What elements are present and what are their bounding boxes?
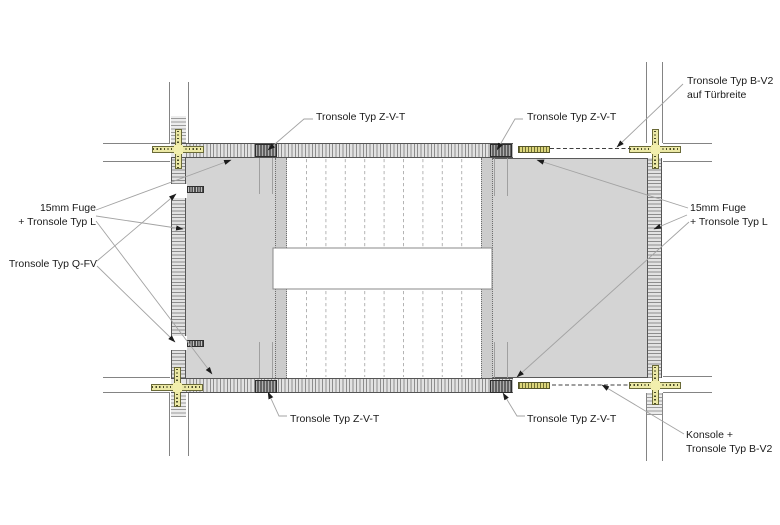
top-wall-corner-left bbox=[171, 143, 186, 158]
label-qfv: Tronsole Typ Q-FV bbox=[5, 257, 97, 271]
cross-arm-horizontal bbox=[629, 146, 681, 153]
label-text-line1: Tronsole Typ B-V2 bbox=[687, 74, 773, 88]
label-fuge-left: 15mm Fuge + Tronsole Typ L bbox=[6, 201, 96, 229]
label-text-line2: + Tronsole Typ L bbox=[6, 215, 96, 229]
stair-edge-strip-left bbox=[275, 158, 287, 378]
label-text-line1: 15mm Fuge bbox=[690, 201, 768, 215]
tronsole-bv2-strip-top bbox=[518, 146, 550, 153]
left-wall-joint-gap-upper bbox=[170, 184, 187, 198]
leader-zvt-bottom-right bbox=[503, 393, 525, 416]
cross-arm-horizontal bbox=[629, 382, 681, 389]
left-wall-continuation-bottom bbox=[171, 393, 186, 417]
label-text-line1: 15mm Fuge bbox=[6, 201, 96, 215]
label-text-line2: auf Türbreite bbox=[687, 88, 773, 102]
top-wall bbox=[186, 143, 513, 158]
tronsole-bv2-strip-bottom bbox=[518, 382, 550, 389]
leader-bv2-top bbox=[617, 84, 683, 147]
label-text: Tronsole Typ Z-V-T bbox=[527, 413, 616, 425]
leader-qfv-lower bbox=[97, 266, 175, 342]
cross-center bbox=[651, 381, 660, 390]
label-text-line1: Konsole + bbox=[686, 428, 772, 442]
label-zvt-bottom-left: Tronsole Typ Z-V-T bbox=[290, 412, 379, 426]
label-text: Tronsole Typ Z-V-T bbox=[290, 413, 379, 425]
label-text: Tronsole Typ Z-V-T bbox=[316, 111, 405, 123]
leader-konsole bbox=[602, 385, 684, 434]
tronsole-zvt-element-bottom-left bbox=[255, 380, 277, 393]
label-text: Tronsole Typ Q-FV bbox=[9, 258, 97, 270]
leader-fuge-left-2 bbox=[96, 216, 183, 229]
leader-zvt-bottom-left bbox=[268, 392, 287, 416]
stair-edge-strip-right bbox=[481, 158, 493, 378]
tronsole-qfv-element-lower bbox=[187, 340, 204, 347]
right-wall bbox=[647, 158, 662, 378]
label-zvt-top-left: Tronsole Typ Z-V-T bbox=[316, 110, 405, 124]
cross-center bbox=[651, 145, 660, 154]
leader-qfv-upper bbox=[97, 194, 176, 261]
left-wall-continuation-top bbox=[171, 116, 186, 143]
floor-plan-drawing: Tronsole Typ Z-V-T Tronsole Typ Z-V-T Tr… bbox=[0, 0, 780, 525]
stair-flight-area bbox=[287, 158, 481, 378]
label-fuge-right: 15mm Fuge + Tronsole Typ L bbox=[690, 201, 768, 229]
label-zvt-top-right: Tronsole Typ Z-V-T bbox=[527, 110, 616, 124]
right-wall-continuation-bottom bbox=[647, 393, 662, 415]
bottom-wall-corner-left bbox=[171, 378, 186, 393]
tronsole-zvt-element-top-right bbox=[490, 144, 512, 157]
label-zvt-bottom-right: Tronsole Typ Z-V-T bbox=[527, 412, 616, 426]
bottom-wall bbox=[186, 378, 513, 393]
label-text-line2: + Tronsole Typ L bbox=[690, 215, 768, 229]
label-text: Tronsole Typ Z-V-T bbox=[527, 111, 616, 123]
left-wall-joint-gap-lower bbox=[170, 336, 187, 350]
label-konsole: Konsole + Tronsole Typ B-V2 bbox=[686, 428, 772, 456]
tronsole-zvt-element-bottom-right bbox=[490, 380, 512, 393]
tronsole-qfv-element-upper bbox=[187, 186, 204, 193]
right-landing-slab bbox=[493, 158, 647, 378]
label-bv2-top: Tronsole Typ B-V2 auf Türbreite bbox=[687, 74, 773, 102]
label-text-line2: Tronsole Typ B-V2 bbox=[686, 442, 772, 456]
tronsole-zvt-element-top-left bbox=[255, 144, 277, 157]
